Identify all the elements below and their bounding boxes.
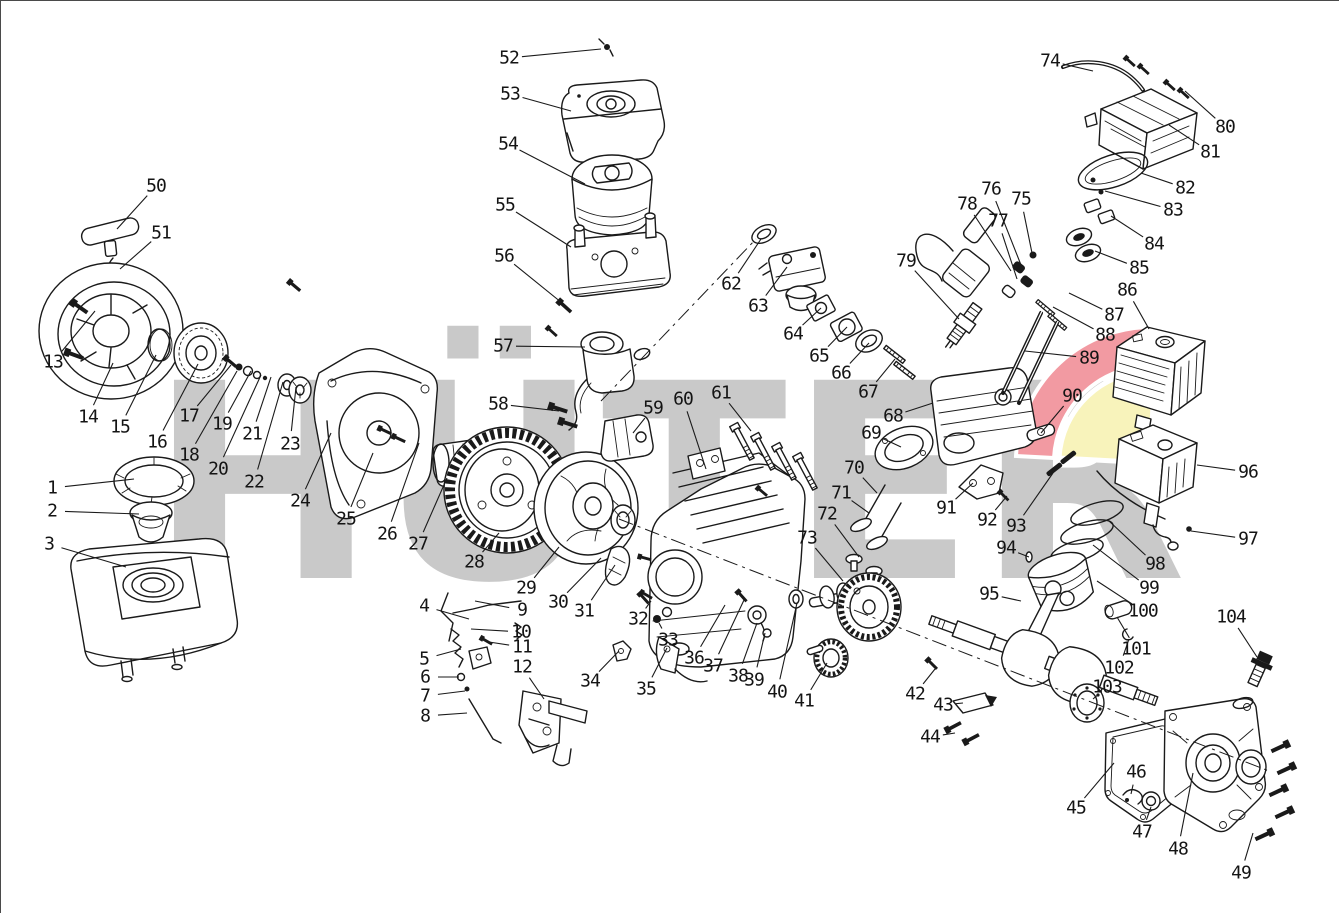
callout-49: 49 xyxy=(1231,863,1251,884)
leader-line-49 xyxy=(1245,833,1253,861)
air-filter-cover-drawing xyxy=(562,80,665,162)
leader-line-48 xyxy=(1181,773,1193,836)
callout-44: 44 xyxy=(920,727,940,748)
callout-38: 38 xyxy=(728,666,748,687)
huter-watermark: HÜTER xyxy=(149,349,1188,621)
parts-diagram-canvas: HÜTER xyxy=(0,0,1339,913)
callout-43: 43 xyxy=(933,695,953,716)
leader-line-53 xyxy=(523,97,571,111)
callout-63: 63 xyxy=(748,296,768,317)
muffler-protector-drawing xyxy=(1085,89,1197,169)
timing-gear-drawing xyxy=(806,639,848,677)
leader-line-34 xyxy=(599,651,619,672)
oil-seal-drawing xyxy=(1123,790,1160,810)
leader-line-44 xyxy=(943,733,955,735)
callout-55: 55 xyxy=(495,195,515,216)
callout-81: 81 xyxy=(1200,142,1220,163)
leader-line-96 xyxy=(1197,465,1235,470)
callout-35: 35 xyxy=(636,679,656,700)
callout-7: 7 xyxy=(420,686,430,707)
callout-15: 15 xyxy=(110,417,130,438)
governor-rod-drawing xyxy=(1063,62,1143,90)
callout-96: 96 xyxy=(1238,462,1258,483)
leader-line-7 xyxy=(438,691,465,694)
air-filter-wing-screw-drawing xyxy=(599,39,613,56)
control-bracket-drawing xyxy=(519,691,587,766)
carburetor-gasket-drawing xyxy=(749,221,779,247)
callout-34: 34 xyxy=(580,671,600,692)
leader-line-84 xyxy=(1111,216,1143,237)
callout-48: 48 xyxy=(1168,839,1188,860)
callout-37: 37 xyxy=(703,656,723,677)
leader-line-12 xyxy=(529,678,544,699)
cover-gasket-drawing xyxy=(1105,719,1181,822)
cover-bolts-drawing xyxy=(1254,739,1298,843)
leader-line-45 xyxy=(1084,763,1114,798)
callout-51: 51 xyxy=(151,223,171,244)
muffler-bolts-drawing xyxy=(1123,55,1191,101)
callout-104: 104 xyxy=(1216,607,1246,628)
callout-82: 82 xyxy=(1175,178,1195,199)
leader-line-46 xyxy=(1131,785,1133,794)
leader-line-82 xyxy=(1141,173,1173,184)
leader-line-76 xyxy=(996,201,1021,265)
leader-line-54 xyxy=(520,150,585,184)
callout-80: 80 xyxy=(1215,117,1235,138)
callout-86: 86 xyxy=(1117,280,1137,301)
leader-line-75 xyxy=(1024,212,1032,253)
leader-line-80 xyxy=(1185,91,1215,118)
callout-74: 74 xyxy=(1040,51,1060,72)
leader-line-43 xyxy=(956,703,963,704)
leader-line-8 xyxy=(438,713,467,715)
callout-39: 39 xyxy=(744,670,764,691)
callout-12: 12 xyxy=(512,657,532,678)
callout-2: 2 xyxy=(47,501,57,522)
callout-84: 84 xyxy=(1144,234,1164,255)
callout-87: 87 xyxy=(1104,305,1124,326)
callout-79: 79 xyxy=(896,251,916,272)
leader-line-78 xyxy=(974,215,1011,271)
leader-line-81 xyxy=(1169,125,1199,145)
callout-76: 76 xyxy=(981,179,1001,200)
callout-14: 14 xyxy=(78,407,98,428)
callout-45: 45 xyxy=(1066,798,1086,819)
leader-line-41 xyxy=(811,663,827,690)
carburetor-drawing xyxy=(759,246,826,311)
leader-line-104 xyxy=(1238,628,1257,657)
callout-53: 53 xyxy=(500,84,520,105)
leader-line-51 xyxy=(120,242,151,269)
leader-line-103 xyxy=(1093,695,1097,699)
leader-line-56 xyxy=(514,264,567,307)
callout-1: 1 xyxy=(47,478,57,499)
starter-handle-drawing xyxy=(80,216,140,298)
air-filter-element-drawing xyxy=(572,155,652,235)
leader-line-47 xyxy=(1146,807,1151,820)
spark-plug-cap-drawing xyxy=(916,206,997,299)
crankcase-cover-drawing xyxy=(1164,699,1265,832)
leader-line-1 xyxy=(65,479,134,487)
callout-62: 62 xyxy=(721,274,741,295)
ball-bearing-drawing xyxy=(1070,684,1104,722)
leader-line-79 xyxy=(915,271,959,319)
leader-line-3 xyxy=(61,548,126,567)
leader-line-97 xyxy=(1191,531,1235,537)
coil-caps-drawing xyxy=(1001,252,1067,331)
oil-drain-plug-drawing xyxy=(1232,649,1276,710)
intake-bolt-drawing xyxy=(555,297,573,314)
leader-line-85 xyxy=(1095,251,1127,263)
callout-46: 46 xyxy=(1126,762,1146,783)
leader-line-2 xyxy=(65,511,139,514)
leader-line-74 xyxy=(1063,64,1093,71)
callout-103: 103 xyxy=(1092,677,1122,698)
callout-102: 102 xyxy=(1104,658,1134,679)
callout-56: 56 xyxy=(494,246,514,267)
callout-75: 75 xyxy=(1011,189,1031,210)
callout-83: 83 xyxy=(1163,200,1183,221)
leader-line-88 xyxy=(1053,307,1094,329)
crankcase-keys-drawing xyxy=(924,656,997,746)
callout-52: 52 xyxy=(499,48,519,69)
leader-line-86 xyxy=(1133,301,1149,329)
pto-bearing-drawing xyxy=(1236,750,1266,784)
leader-line-52 xyxy=(522,49,601,57)
leader-line-87 xyxy=(1069,293,1102,309)
callout-5: 5 xyxy=(419,649,429,670)
leader-line-5 xyxy=(437,649,461,656)
callout-41: 41 xyxy=(794,691,814,712)
leader-line-63 xyxy=(766,267,787,296)
callout-85: 85 xyxy=(1129,258,1149,279)
air-filter-base-drawing xyxy=(567,213,671,296)
leader-line-62 xyxy=(738,239,761,273)
callout-77: 77 xyxy=(988,211,1008,232)
leader-line-83 xyxy=(1105,191,1160,207)
callout-8: 8 xyxy=(420,706,430,727)
leader-line-55 xyxy=(516,212,571,247)
exhaust-gasket-drawing xyxy=(1064,145,1152,265)
leader-line-64 xyxy=(803,308,821,325)
callout-78: 78 xyxy=(957,194,977,215)
callout-6: 6 xyxy=(420,667,430,688)
callout-50: 50 xyxy=(146,176,166,197)
callout-47: 47 xyxy=(1132,822,1152,843)
leader-line-77 xyxy=(1002,233,1017,279)
leader-line-50 xyxy=(117,196,147,229)
leader-line-35 xyxy=(652,648,667,677)
leader-line-13 xyxy=(61,311,95,352)
leader-line-14 xyxy=(93,363,113,405)
leader-line-42 xyxy=(923,669,935,684)
callout-54: 54 xyxy=(498,134,518,155)
callout-42: 42 xyxy=(905,684,925,705)
callout-13: 13 xyxy=(43,352,63,373)
callout-3: 3 xyxy=(44,534,54,555)
callout-40: 40 xyxy=(767,682,787,703)
callout-36: 36 xyxy=(684,648,704,669)
callout-97: 97 xyxy=(1238,529,1258,550)
